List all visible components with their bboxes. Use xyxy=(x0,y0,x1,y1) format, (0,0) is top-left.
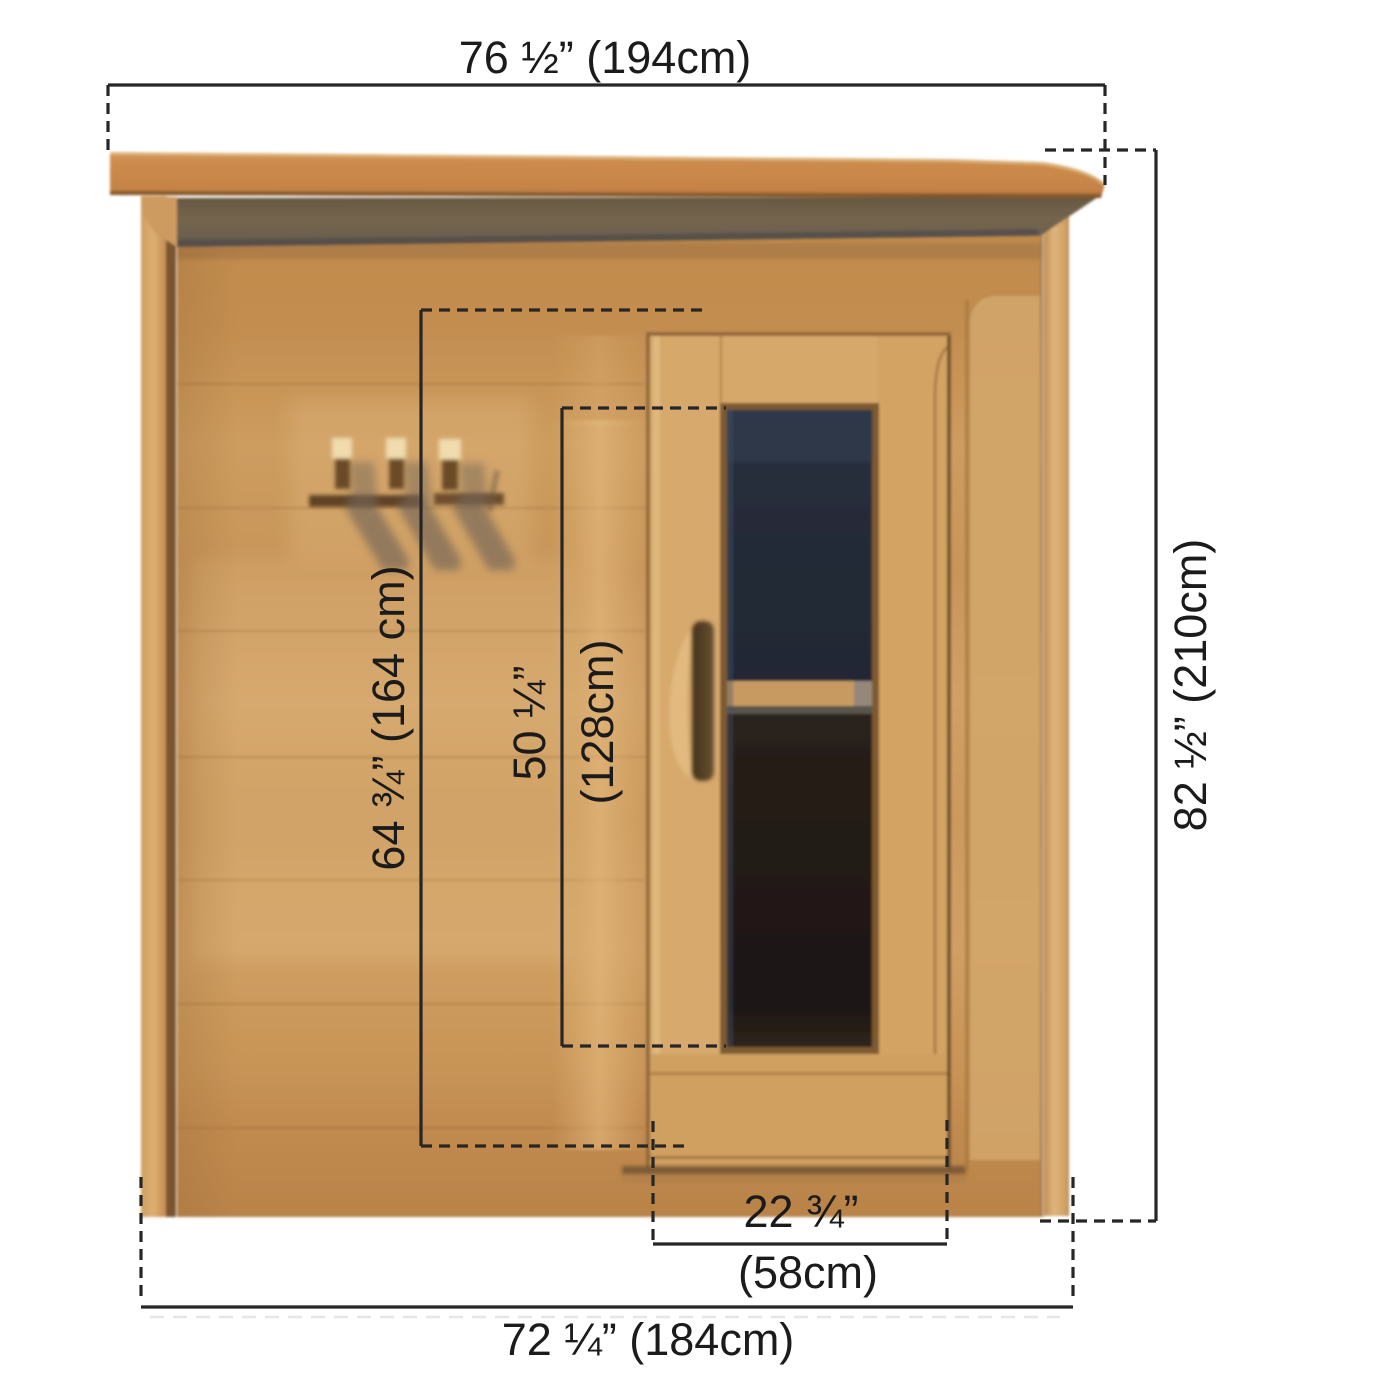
svg-text:82 ½” (210cm): 82 ½” (210cm) xyxy=(1165,539,1216,832)
svg-text:(128cm): (128cm) xyxy=(572,639,623,804)
svg-text:64 ¾” (164 cm): 64 ¾” (164 cm) xyxy=(363,565,414,870)
svg-text:50 ¼”: 50 ¼” xyxy=(504,665,555,780)
svg-text:76 ½” (194cm): 76 ½” (194cm) xyxy=(459,32,752,83)
svg-text:(58cm): (58cm) xyxy=(738,1247,878,1298)
svg-text:72 ¼” (184cm): 72 ¼” (184cm) xyxy=(502,1314,795,1365)
svg-text:22 ¾”: 22 ¾” xyxy=(743,1186,858,1237)
